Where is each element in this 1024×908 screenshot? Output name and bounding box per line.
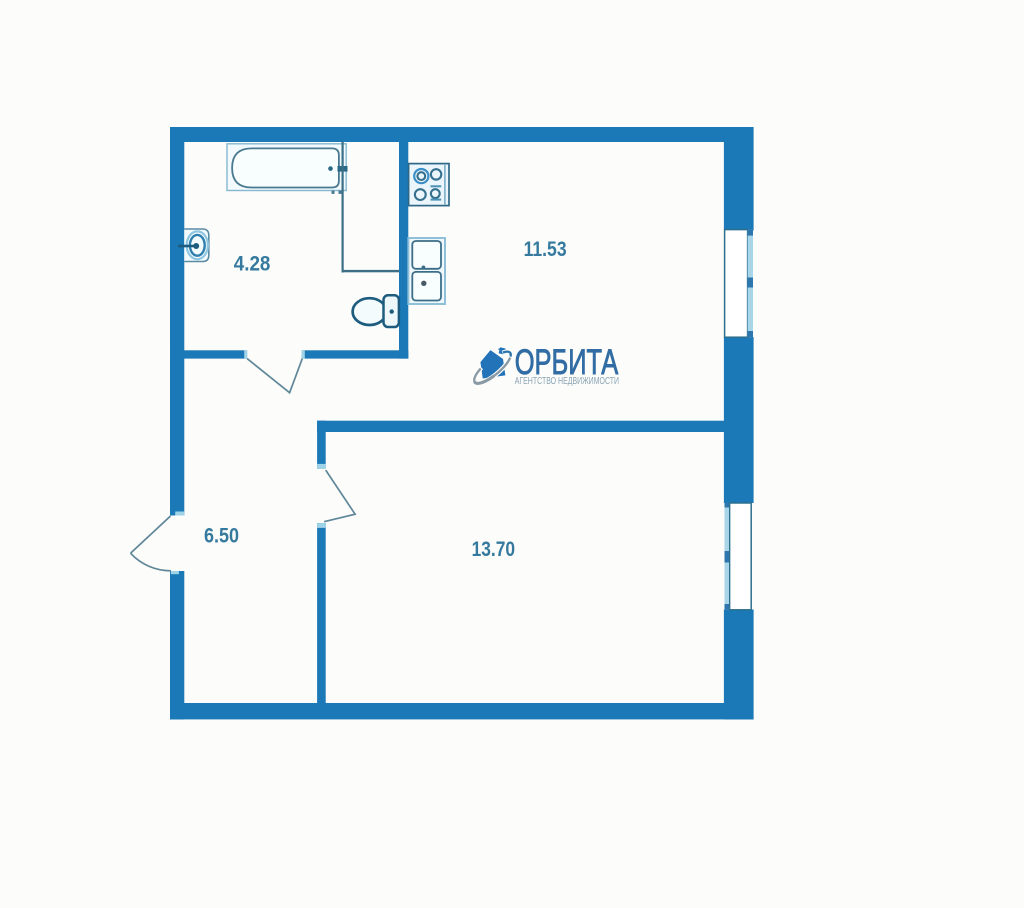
svg-text:11.53: 11.53 [524,237,567,261]
svg-text:6.50: 6.50 [204,523,239,547]
svg-text:13.70: 13.70 [472,537,515,561]
svg-text:4.28: 4.28 [234,252,271,276]
svg-text:АГЕНТСТВО НЕДВИЖИМОСТИ: АГЕНТСТВО НЕДВИЖИМОСТИ [515,376,619,387]
